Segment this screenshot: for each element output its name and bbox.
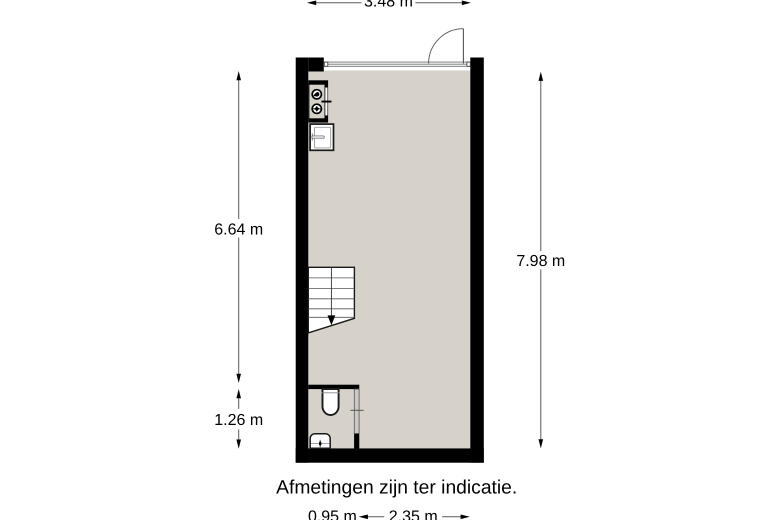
svg-text:6.64 m: 6.64 m bbox=[214, 222, 263, 239]
svg-text:0.95 m: 0.95 m bbox=[308, 509, 357, 520]
svg-text:7.98 m: 7.98 m bbox=[516, 253, 565, 270]
svg-text:2.35 m: 2.35 m bbox=[389, 509, 438, 520]
svg-text:Afmetingen zijn ter indicatie.: Afmetingen zijn ter indicatie. bbox=[276, 478, 517, 499]
svg-text:3.48 m: 3.48 m bbox=[364, 0, 413, 10]
svg-text:1.26 m: 1.26 m bbox=[214, 412, 263, 429]
